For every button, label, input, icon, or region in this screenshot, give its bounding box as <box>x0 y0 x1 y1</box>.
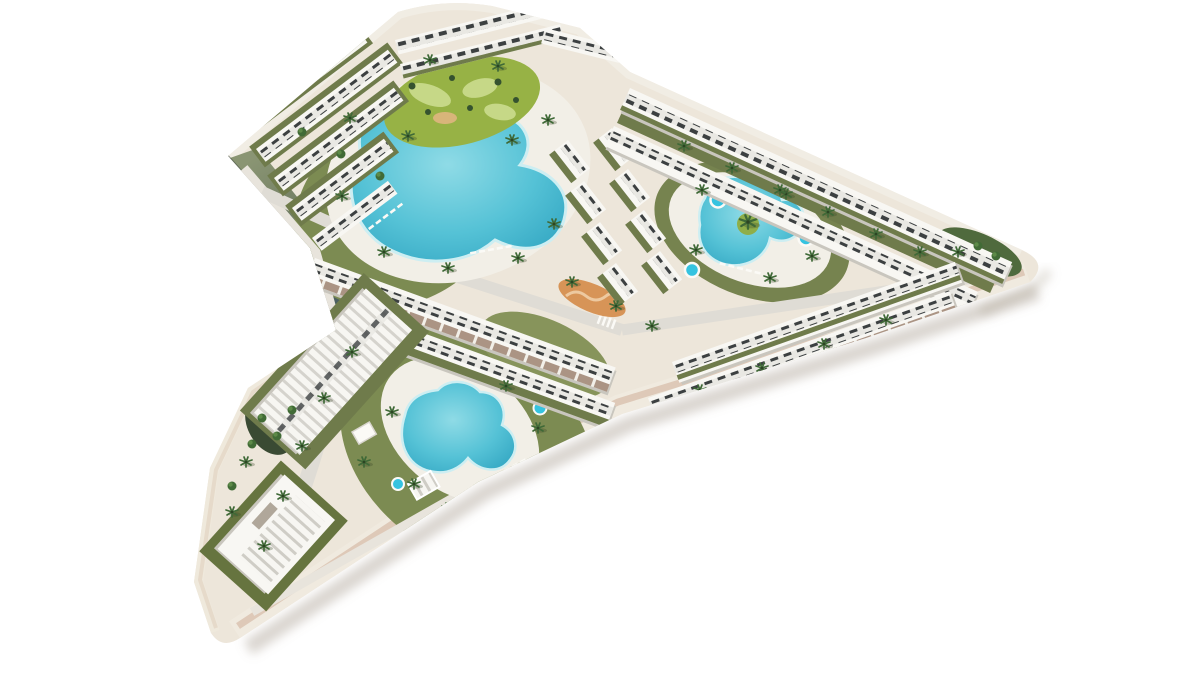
render-canvas: Bird's-eye architectural rendering of a … <box>0 0 1200 676</box>
site-plan-render <box>0 0 1200 676</box>
spa-pool <box>392 478 404 490</box>
